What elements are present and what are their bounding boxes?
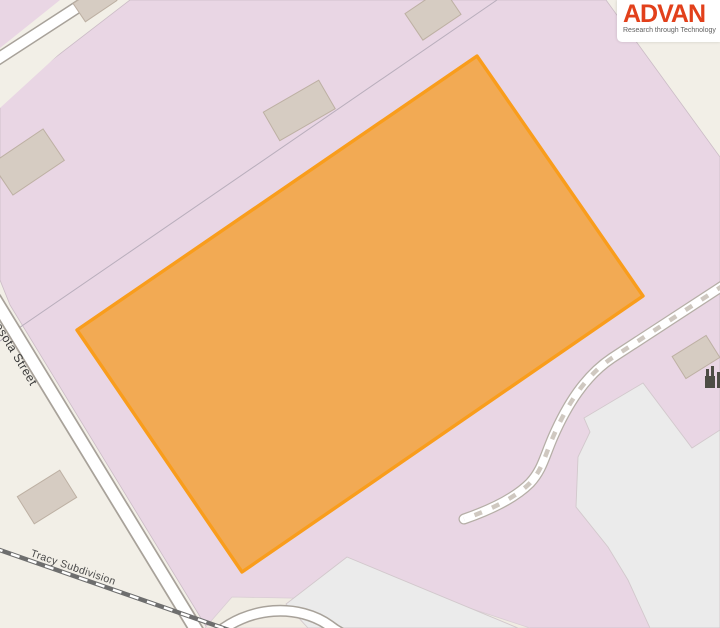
map-canvas[interactable]: Minnesota Street Tracy Subdivision — [0, 0, 720, 628]
advan-logo-title: ADVAN — [623, 1, 718, 27]
advan-logo: ADVAN Research through Technology — [617, 0, 720, 42]
advan-logo-tagline: Research through Technology — [623, 27, 718, 35]
